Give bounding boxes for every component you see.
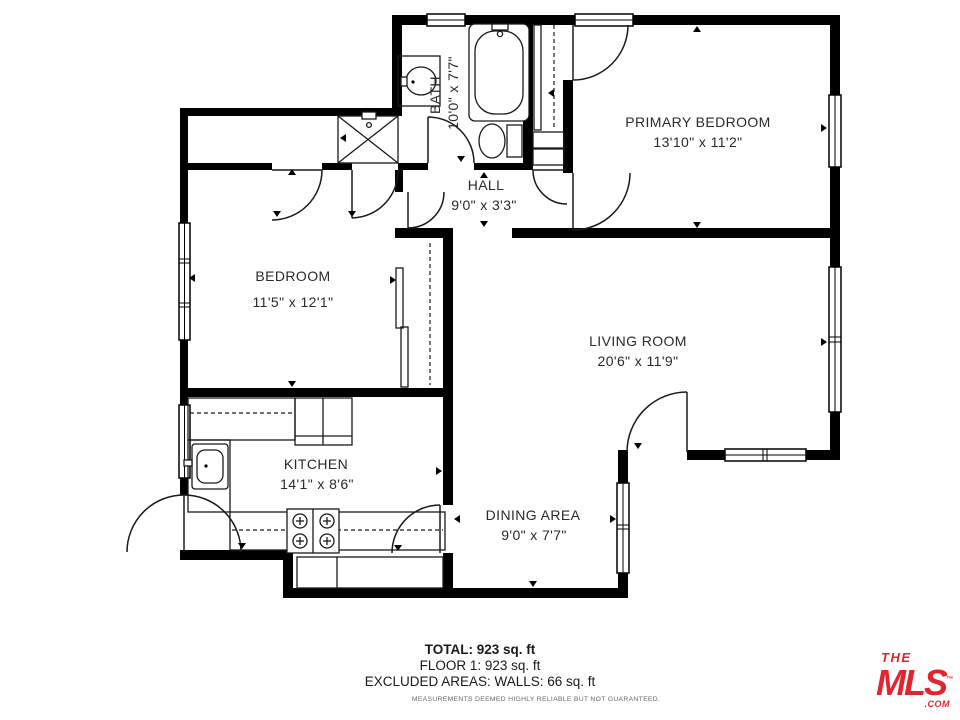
room-dims: 9'0" x 7'7" bbox=[501, 527, 567, 543]
room-dims: 20'6" x 11'9" bbox=[598, 353, 679, 369]
refrigerator bbox=[295, 398, 352, 445]
room-label-primary-bedroom: PRIMARY BEDROOM 13'10" x 11'2" bbox=[625, 114, 771, 150]
room-dims: 11'5" x 12'1" bbox=[253, 294, 334, 310]
excluded-area: EXCLUDED AREAS: WALLS: 66 sq. ft bbox=[0, 674, 960, 690]
logo-trademark: ™ bbox=[946, 676, 953, 683]
logo-mls-text: MLS™ bbox=[876, 665, 954, 701]
kitchen-sink bbox=[184, 440, 230, 512]
sliding-door-panel bbox=[401, 327, 408, 387]
stove bbox=[287, 509, 339, 553]
room-dims: 9'0" x 3'3" bbox=[451, 197, 517, 213]
window bbox=[829, 267, 841, 412]
entry-nook-cabinet bbox=[297, 557, 443, 588]
room-name: KITCHEN bbox=[284, 456, 348, 472]
door-swing bbox=[408, 192, 444, 228]
room-name: DINING AREA bbox=[486, 507, 581, 523]
sliding-door-panel bbox=[396, 268, 403, 328]
room-label-dining-area: DINING AREA 9'0" x 7'7" bbox=[486, 507, 581, 543]
room-label-living-room: LIVING ROOM 20'6" x 11'9" bbox=[589, 333, 687, 369]
door-swing bbox=[573, 173, 630, 230]
room-dims: 10'0" x 7'7" bbox=[445, 56, 461, 130]
window bbox=[725, 449, 806, 461]
door-swing-double bbox=[127, 495, 241, 552]
room-dims: 13'10" x 11'2" bbox=[653, 134, 742, 150]
room-label-bath: BATH 10'0" x 7'7" bbox=[427, 56, 461, 130]
primary-closet bbox=[533, 25, 564, 165]
room-label-kitchen: KITCHEN 14'1" x 8'6" bbox=[280, 456, 354, 492]
toilet bbox=[479, 124, 522, 158]
door-swing bbox=[573, 25, 628, 80]
room-name: PRIMARY BEDROOM bbox=[625, 114, 771, 130]
window bbox=[427, 14, 465, 26]
mls-logo: THE MLS™ .COM bbox=[876, 651, 954, 709]
floor-plan-page: BATH 10'0" x 7'7" HALL 9'0" x 3'3" PRIMA… bbox=[0, 0, 960, 720]
floor-plan: BATH 10'0" x 7'7" HALL 9'0" x 3'3" PRIMA… bbox=[0, 0, 960, 720]
total-area: TOTAL: 923 sq. ft bbox=[0, 642, 960, 658]
room-label-bedroom: BEDROOM 11'5" x 12'1" bbox=[253, 268, 334, 310]
floor-area: FLOOR 1: 923 sq. ft bbox=[0, 658, 960, 674]
shower bbox=[338, 112, 398, 163]
window bbox=[179, 223, 190, 340]
kitchen-counter-top bbox=[188, 398, 295, 440]
room-name: LIVING ROOM bbox=[589, 333, 687, 349]
window bbox=[829, 95, 841, 167]
room-name: BATH bbox=[427, 76, 443, 114]
room-name: HALL bbox=[468, 177, 505, 193]
disclaimer-text: MEASUREMENTS DEEMED HIGHLY RELIABLE BUT … bbox=[56, 696, 960, 703]
door-swing bbox=[533, 170, 567, 204]
door-swing bbox=[352, 170, 398, 218]
window bbox=[575, 14, 633, 26]
room-name: BEDROOM bbox=[255, 268, 330, 284]
bathtub bbox=[469, 24, 529, 121]
bedroom-closet bbox=[396, 243, 430, 387]
room-dims: 14'1" x 8'6" bbox=[280, 476, 354, 492]
window bbox=[617, 483, 629, 573]
area-summary: TOTAL: 923 sq. ft FLOOR 1: 923 sq. ft EX… bbox=[0, 642, 960, 703]
room-label-hall: HALL 9'0" x 3'3" bbox=[451, 177, 517, 213]
